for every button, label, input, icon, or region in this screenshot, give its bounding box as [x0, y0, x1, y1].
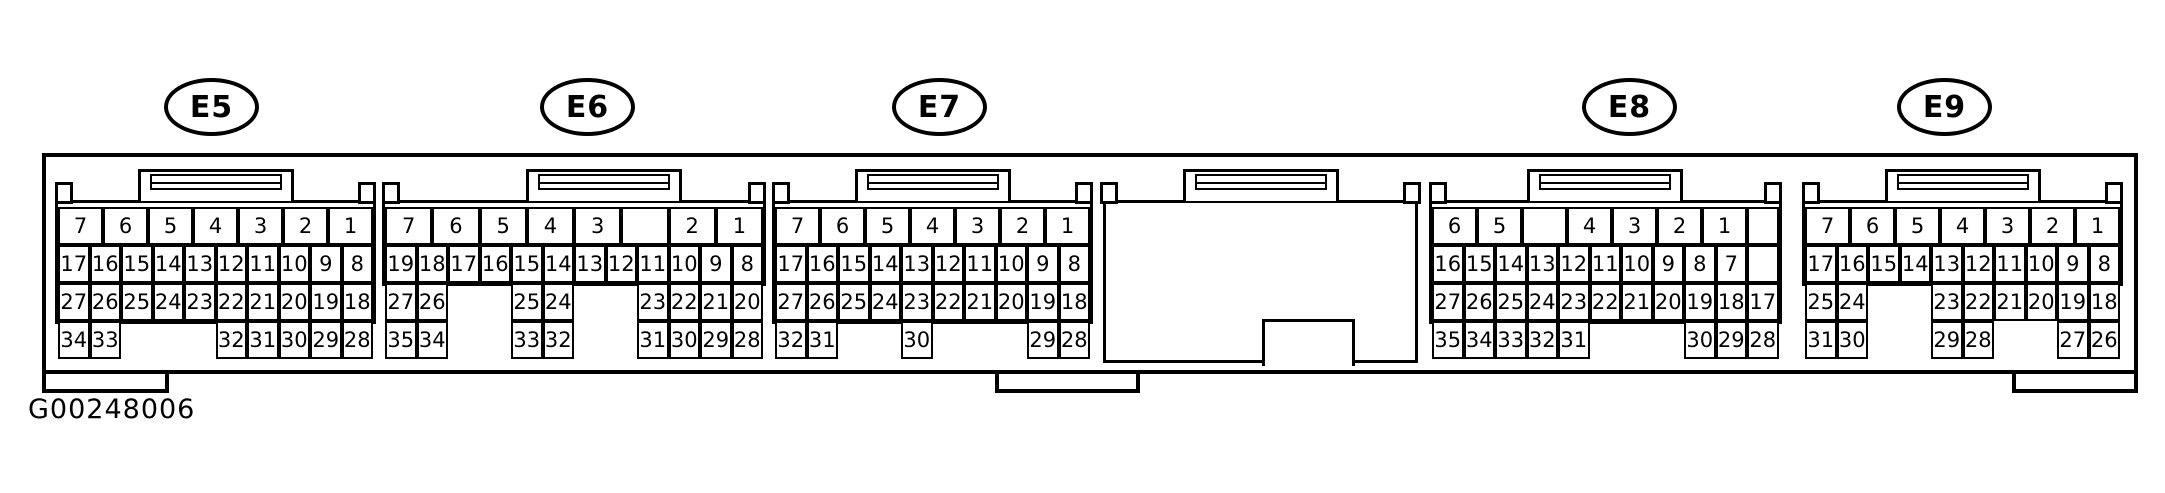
pin-cell: 12	[933, 245, 965, 283]
pin-cell: 32	[216, 321, 248, 359]
pin-cell: 5	[1895, 207, 1940, 245]
pin-cell: 8	[1059, 245, 1091, 283]
pin-cell: 28	[1963, 321, 1995, 359]
pin-cell: 24	[543, 283, 575, 321]
pin-cell: 1	[2075, 207, 2120, 245]
pin-cell: 8	[1684, 245, 1716, 283]
pin-cell: 7	[385, 207, 432, 245]
pin-cell: 16	[1837, 245, 1869, 283]
connector-label-e6: E6	[540, 78, 635, 136]
connector-bump-left	[1429, 182, 1447, 204]
pin-cell: 4	[193, 207, 238, 245]
pin-cell: 29	[700, 321, 732, 359]
pin-cell: 20	[996, 283, 1028, 321]
pin-cell: 24	[1837, 283, 1869, 321]
pin-cell: 26	[90, 283, 122, 321]
connector-bump-left	[55, 182, 73, 204]
pin-cell: 7	[1716, 245, 1748, 283]
pin-cell: 9	[700, 245, 732, 283]
pin-cell: 22	[669, 283, 701, 321]
pin-cell: 10	[996, 245, 1028, 283]
pin-cell: 13	[574, 245, 606, 283]
pin-cell: 23	[1558, 283, 1590, 321]
pin-cell: 14	[1900, 245, 1932, 283]
pin-cell: 9	[1027, 245, 1059, 283]
pin-cell: 22	[933, 283, 965, 321]
pin-cell-empty	[1522, 207, 1567, 245]
connector-bump-right	[1403, 182, 1421, 204]
pin-cell: 29	[1716, 321, 1748, 359]
pin-cell: 30	[901, 321, 933, 359]
pin-cell: 24	[153, 283, 185, 321]
pin-cell: 30	[1684, 321, 1716, 359]
pin-cell: 6	[1432, 207, 1477, 245]
pin-cell: 27	[775, 283, 807, 321]
pin-cell: 26	[1464, 283, 1496, 321]
connector-key-ridge	[1539, 174, 1671, 190]
pin-cell: 13	[901, 245, 933, 283]
pin-cell: 23	[184, 283, 216, 321]
pin-cell: 20	[1653, 283, 1685, 321]
pin-cell: 30	[279, 321, 311, 359]
pin-cell: 29	[1027, 321, 1059, 359]
pin-cell: 34	[417, 321, 449, 359]
pin-cell: 2	[2030, 207, 2075, 245]
pin-cell: 4	[1567, 207, 1612, 245]
pin-cell: 9	[1653, 245, 1685, 283]
pin-cell: 19	[1027, 283, 1059, 321]
pin-cell: 32	[1527, 321, 1559, 359]
pin-cell: 14	[153, 245, 185, 283]
pin-cell: 19	[310, 283, 342, 321]
pin-cell: 22	[1590, 283, 1622, 321]
connector-bump-right	[1075, 182, 1093, 204]
pin-cell: 23	[901, 283, 933, 321]
pin-cell: 16	[807, 245, 839, 283]
pin-cell: 32	[775, 321, 807, 359]
pin-cell: 12	[1963, 245, 1995, 283]
mounting-tab-right	[2012, 370, 2138, 393]
pin-cell: 6	[820, 207, 865, 245]
pin-cell: 17	[1747, 283, 1779, 321]
pin-cell: 31	[637, 321, 669, 359]
pin-cell: 25	[838, 283, 870, 321]
connector-key-ridge	[1195, 174, 1327, 190]
pin-cell: 17	[1805, 245, 1837, 283]
pin-cell: 18	[417, 245, 449, 283]
pin-cell: 27	[385, 283, 417, 321]
connector-key-ridge	[538, 174, 670, 190]
pin-cell: 5	[480, 207, 527, 245]
pin-cell: 16	[1432, 245, 1464, 283]
pin-cell: 10	[279, 245, 311, 283]
pin-cell: 22	[216, 283, 248, 321]
connector-label-e7: E7	[892, 78, 987, 136]
connector-key-ridge	[1897, 174, 2029, 190]
pin-cell: 25	[1805, 283, 1837, 321]
pin-cell: 35	[385, 321, 417, 359]
pin-cell: 30	[1837, 321, 1869, 359]
pin-cell: 14	[1495, 245, 1527, 283]
connector-key-ridge	[150, 174, 282, 190]
pin-cell: 15	[121, 245, 153, 283]
pin-cell: 7	[775, 207, 820, 245]
pin-cell: 21	[1994, 283, 2026, 321]
connector-bump-right	[358, 182, 376, 204]
pin-cell: 25	[511, 283, 543, 321]
pin-cell: 9	[2057, 245, 2089, 283]
pin-cell: 28	[1059, 321, 1091, 359]
pin-cell: 11	[1994, 245, 2026, 283]
connector-key-ridge	[867, 174, 999, 190]
pin-cell: 23	[637, 283, 669, 321]
pin-cell: 28	[342, 321, 374, 359]
pin-cell: 17	[448, 245, 480, 283]
pin-cell: 21	[1621, 283, 1653, 321]
pin-cell: 17	[58, 245, 90, 283]
pin-cell: 5	[148, 207, 193, 245]
connector-blank-body	[1103, 200, 1418, 363]
pin-cell: 13	[184, 245, 216, 283]
pin-cell: 10	[1621, 245, 1653, 283]
pin-cell: 29	[1931, 321, 1963, 359]
connector-bump-right	[1764, 182, 1782, 204]
pin-cell: 6	[432, 207, 479, 245]
pin-cell: 5	[1477, 207, 1522, 245]
pin-cell: 6	[1850, 207, 1895, 245]
pin-cell: 7	[58, 207, 103, 245]
pin-cell: 8	[732, 245, 764, 283]
pin-cell: 16	[90, 245, 122, 283]
pin-cell: 3	[1985, 207, 2030, 245]
pin-cell: 15	[1464, 245, 1496, 283]
pin-cell: 14	[870, 245, 902, 283]
pin-cell: 19	[1684, 283, 1716, 321]
pin-cell: 13	[1527, 245, 1559, 283]
pin-cell: 1	[716, 207, 763, 245]
pin-cell: 25	[121, 283, 153, 321]
connector-key-ridge-line	[152, 182, 280, 184]
pin-cell: 18	[1059, 283, 1091, 321]
pin-cell: 4	[1940, 207, 1985, 245]
pin-cell: 18	[342, 283, 374, 321]
pin-cell: 26	[807, 283, 839, 321]
pin-cell-empty	[1747, 207, 1779, 245]
pin-cell: 6	[103, 207, 148, 245]
pin-cell: 3	[1612, 207, 1657, 245]
connector-bump-left	[1802, 182, 1820, 204]
pin-cell: 32	[543, 321, 575, 359]
pin-cell: 30	[669, 321, 701, 359]
pin-cell: 33	[511, 321, 543, 359]
pin-cell: 24	[870, 283, 902, 321]
pin-cell: 11	[637, 245, 669, 283]
pin-cell: 8	[2089, 245, 2121, 283]
pin-cell: 33	[1495, 321, 1527, 359]
pin-cell: 2	[283, 207, 328, 245]
pin-cell: 31	[1558, 321, 1590, 359]
pin-cell: 12	[606, 245, 638, 283]
pin-cell: 18	[1716, 283, 1748, 321]
pin-cell: 31	[1805, 321, 1837, 359]
connector-bump-right	[2105, 182, 2123, 204]
connector-bump-right	[748, 182, 766, 204]
connector-key-ridge-line	[1197, 182, 1325, 184]
connector-key-ridge-line	[540, 182, 668, 184]
pin-cell: 34	[1464, 321, 1496, 359]
pin-cell: 20	[279, 283, 311, 321]
pin-cell: 20	[2026, 283, 2058, 321]
pin-cell: 22	[1963, 283, 1995, 321]
pin-cell: 2	[1657, 207, 1702, 245]
pin-cell: 3	[574, 207, 621, 245]
pin-cell: 29	[310, 321, 342, 359]
pin-cell: 35	[1432, 321, 1464, 359]
connector-key-ridge-line	[1541, 182, 1669, 184]
pin-cell: 21	[964, 283, 996, 321]
pin-cell: 12	[1558, 245, 1590, 283]
pin-cell: 15	[511, 245, 543, 283]
pin-cell: 11	[1590, 245, 1622, 283]
pin-cell-empty	[1747, 245, 1779, 283]
pin-cell: 11	[247, 245, 279, 283]
pin-cell: 26	[417, 283, 449, 321]
pin-cell: 33	[90, 321, 122, 359]
pin-cell: 21	[700, 283, 732, 321]
pin-cell: 2	[669, 207, 716, 245]
pin-cell: 1	[1045, 207, 1090, 245]
pin-cell: 1	[1702, 207, 1747, 245]
pin-cell: 31	[807, 321, 839, 359]
pin-cell: 3	[955, 207, 1000, 245]
connector-pinout-diagram: G00248006 765432117161514131211109827262…	[0, 0, 2165, 493]
pin-cell: 2	[1000, 207, 1045, 245]
pin-cell: 10	[2026, 245, 2058, 283]
pin-cell: 4	[527, 207, 574, 245]
pin-cell: 28	[732, 321, 764, 359]
pin-cell: 25	[1495, 283, 1527, 321]
pin-cell: 34	[58, 321, 90, 359]
pin-cell: 1	[328, 207, 373, 245]
mounting-tab-left	[42, 370, 169, 393]
pin-cell: 4	[910, 207, 955, 245]
pin-cell-empty	[621, 207, 668, 245]
connector-label-e5: E5	[164, 78, 259, 136]
pin-cell: 13	[1931, 245, 1963, 283]
pin-cell: 27	[1432, 283, 1464, 321]
pin-cell: 21	[247, 283, 279, 321]
pin-cell: 16	[480, 245, 512, 283]
pin-cell: 26	[2089, 321, 2121, 359]
pin-cell: 20	[732, 283, 764, 321]
pin-cell: 11	[964, 245, 996, 283]
connector-bump-left	[382, 182, 400, 204]
connector-label-e8: E8	[1582, 78, 1677, 136]
pin-cell: 27	[58, 283, 90, 321]
pin-cell: 28	[1747, 321, 1779, 359]
pin-cell: 19	[2057, 283, 2089, 321]
connector-bump-left	[1100, 182, 1118, 204]
pin-cell: 18	[2089, 283, 2121, 321]
pin-cell: 19	[385, 245, 417, 283]
pin-cell: 24	[1527, 283, 1559, 321]
pin-cell: 10	[669, 245, 701, 283]
figure-code: G00248006	[28, 394, 195, 425]
pin-cell: 17	[775, 245, 807, 283]
pin-cell: 15	[1868, 245, 1900, 283]
pin-cell: 12	[216, 245, 248, 283]
pin-cell: 27	[2057, 321, 2089, 359]
pin-cell: 23	[1931, 283, 1963, 321]
connector-notch	[1262, 319, 1355, 366]
pin-cell: 3	[238, 207, 283, 245]
connector-bump-left	[772, 182, 790, 204]
connector-label-e9: E9	[1897, 78, 1992, 136]
pin-cell: 31	[247, 321, 279, 359]
pin-cell: 14	[543, 245, 575, 283]
pin-cell: 15	[838, 245, 870, 283]
pin-cell: 7	[1805, 207, 1850, 245]
mounting-tab-middle	[995, 370, 1140, 393]
pin-cell: 9	[310, 245, 342, 283]
connector-key-ridge-line	[1899, 182, 2027, 184]
connector-key-ridge-line	[869, 182, 997, 184]
pin-cell: 5	[865, 207, 910, 245]
pin-cell: 8	[342, 245, 374, 283]
